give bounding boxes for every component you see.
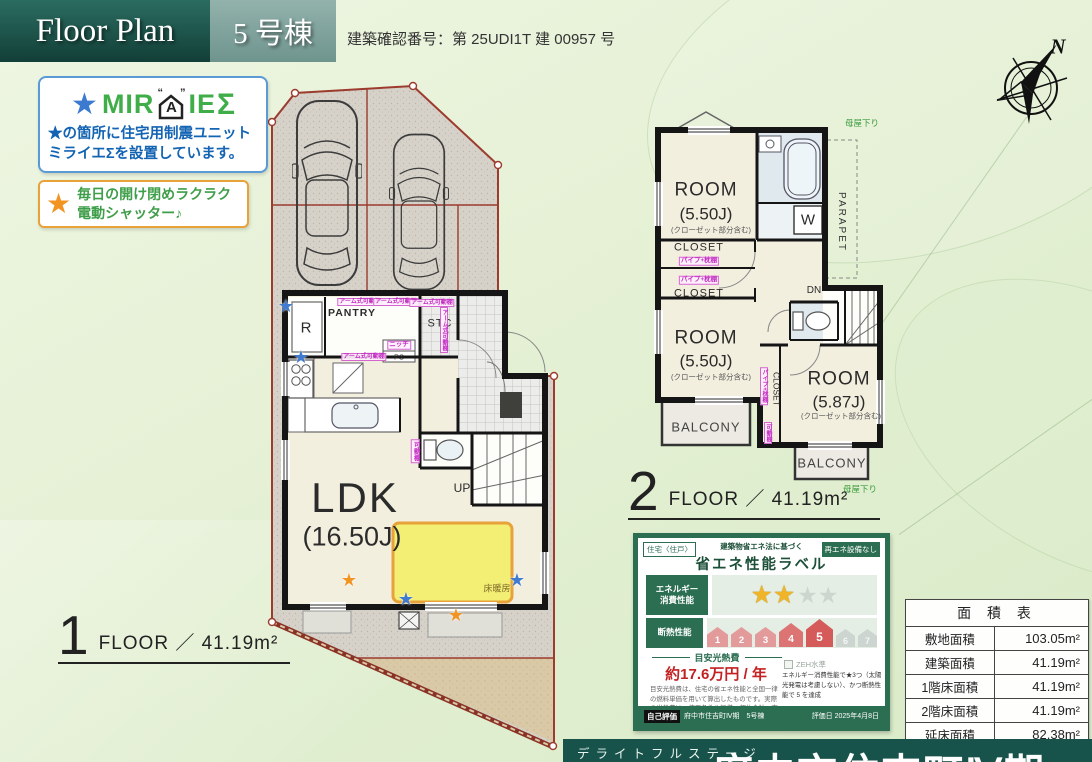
room-label-pantry: PANTRY — [328, 308, 376, 319]
area-row-value: 103.05m² — [994, 627, 1088, 651]
closet-label: CLOSET — [674, 289, 724, 300]
insulation-houses: 1 2 3 4 5 6 7 — [707, 619, 877, 647]
table-row: 敷地面積 103.05m² — [906, 627, 1089, 651]
area-row-value: 41.19m² — [994, 675, 1088, 699]
energy-note-right: エネルギー消費性能で★3つ（太陽光発電は考慮しない）、かつ断熱性能で 5 を達成 — [782, 671, 886, 701]
floor2-number: 2 — [628, 468, 659, 515]
area-table: 面 積 表 敷地面積 103.05m² 建築面積 41.19m² 1階床面積 4… — [905, 599, 1089, 747]
miraie-star-marker: ★ — [293, 348, 309, 366]
floor2-area: FLOOR ／ 41.19m² — [669, 484, 849, 515]
insulation-level-2: 2 — [731, 627, 752, 647]
label-arm-shelf: アーム式可動棚 — [409, 299, 454, 307]
parapet-label: PARAPET — [836, 192, 846, 252]
insulation-row: 断熱性能 1 2 3 4 5 6 7 — [646, 618, 877, 648]
miraie-description-line2: ミライエΣを設置しています。 — [48, 144, 258, 164]
estimated-cost: 約17.6万円 / 年 — [648, 663, 784, 684]
miraie-brand-post: IE — [188, 91, 216, 118]
zeh-level: ZEH水準 — [784, 659, 826, 670]
label-niche: ニッチ — [387, 341, 411, 350]
room-size-label: (5.87J) — [813, 394, 866, 411]
shutter-star-marker: ★ — [341, 571, 357, 589]
label-pipe-shelf: パイプ+枕棚 — [679, 257, 719, 266]
energy-consumption-label: エネルギー 消費性能 — [646, 575, 708, 615]
insulation-level-6: 6 — [836, 629, 855, 647]
miraie-info-box: ★ MIR “ ” A IE Σ ★の箇所に住宅用制震ユニット ミライエΣを設置… — [38, 76, 268, 173]
insulation-label: 断熱性能 — [646, 618, 703, 648]
label-arm-shelf: アーム式可動棚 — [440, 307, 448, 353]
balcony-label: BALCONY — [671, 421, 740, 434]
closet-note: (クローゼット部分含む) — [671, 226, 751, 234]
zeh-checkbox-icon — [784, 660, 793, 669]
table-row: 2階床面積 41.19m² — [906, 699, 1089, 723]
miraie-description-line1: ★の箇所に住宅用制震ユニット — [48, 124, 258, 144]
stars-filled: ★★ — [750, 580, 795, 610]
floor1-number: 1 — [58, 612, 89, 659]
insulation-level-1: 1 — [707, 627, 728, 647]
label-pipe-shelf: パイプ+枕棚 — [679, 276, 719, 285]
room-label-fridge: R — [301, 321, 312, 336]
energy-label-title: 省エネ性能ラベル — [638, 553, 885, 574]
room-size-label: (5.50J) — [680, 353, 733, 370]
area-row-value: 41.19m² — [994, 651, 1088, 675]
energy-row-line1: エネルギー — [656, 584, 699, 595]
insulation-level-4: 4 — [779, 623, 803, 647]
label-pipe-shelf: パイプ+枕棚 — [760, 367, 768, 405]
table-row: 建築面積 41.19m² — [906, 651, 1089, 675]
label-movable-shelf: 可動棚 — [764, 422, 772, 444]
project-name: 府中市住吉町Ⅳ期 — [713, 741, 1046, 762]
floor2-caption: 2 FLOOR ／ 41.19m² — [628, 468, 880, 520]
zeh-label: ZEH水準 — [796, 659, 826, 670]
energy-label-subtitle: 建築物省エネ法に基づく — [638, 541, 885, 552]
moya-kudari-label: 母屋下り — [845, 119, 879, 128]
label-arm-shelf: アーム式可動棚 — [341, 353, 386, 361]
area-row-label: 2階床面積 — [906, 699, 995, 723]
closet-label: CLOSET — [674, 243, 724, 254]
miraie-logo: ★ MIR “ ” A IE Σ — [48, 86, 258, 124]
star-icon: ★ — [71, 90, 98, 120]
area-row-label: 建築面積 — [906, 651, 995, 675]
flyer-canvas: Floor Plan 5 号棟 建築確認番号：第 25UDI1T 建 00957… — [0, 0, 1092, 762]
unit-badge: 5 号棟 — [210, 0, 336, 62]
room-label: ROOM — [674, 329, 737, 348]
miraie-brand-pre: MIR — [102, 91, 155, 118]
energy-row-line2: 消費性能 — [660, 595, 694, 606]
closet-note: (クローゼット部分含む) — [671, 373, 751, 381]
closet-label: CLOSET — [772, 372, 781, 406]
floor-heating-label: 床暖房 — [483, 585, 510, 594]
insulation-level-3: 3 — [755, 627, 776, 647]
room-size-label: (5.50J) — [680, 206, 733, 223]
washer-label: W — [801, 213, 815, 228]
stairs-dn-label: DN — [807, 286, 821, 296]
floor1-area: FLOOR ／ 41.19m² — [99, 628, 279, 659]
shutter-line1: 毎日の開け閉めラクラク — [77, 185, 231, 204]
energy-consumption-row: エネルギー 消費性能 ★★ ★★ — [646, 575, 877, 615]
energy-performance-label: 住宅〈住戸〉 再エネ設備なし 建築物省エネ法に基づく 省エネ性能ラベル エネルギ… — [633, 533, 890, 731]
energy-label-footer: 自己評価 府中市住吉町Ⅳ期 5号棟 評価日 2025年4月8日 — [638, 706, 885, 726]
footer-banner: デライトフルステージ 府中市住吉町Ⅳ期 — [563, 739, 1092, 762]
miraie-star-marker: ★ — [278, 297, 294, 315]
evaluation-date: 評価日 2025年4月8日 — [812, 711, 879, 721]
insulation-level-5: 5 — [806, 619, 833, 647]
shutter-info-box: ★ 毎日の開け閉めラクラク 電動シャッター♪ — [38, 180, 249, 228]
shutter-description: 毎日の開け閉めラクラク 電動シャッター♪ — [77, 185, 231, 223]
area-row-label: 敷地面積 — [906, 627, 995, 651]
building-confirmation-number: 建築確認番号：第 25UDI1T 建 00957 号 — [347, 28, 615, 49]
closet-note: (クローゼット部分含む) — [801, 412, 881, 420]
room-label: ROOM — [807, 370, 870, 389]
star-icon: ★ — [46, 190, 71, 218]
area-row-value: 41.19m² — [994, 699, 1088, 723]
floor1-caption: 1 FLOOR ／ 41.19m² — [58, 612, 290, 664]
stars-empty: ★★ — [797, 582, 838, 609]
table-row: 1階床面積 41.19m² — [906, 675, 1089, 699]
insulation-scale: 1 2 3 4 5 6 7 — [707, 618, 877, 648]
page-title: Floor Plan — [0, 0, 210, 62]
house-a-icon: “ ” A — [156, 89, 186, 121]
energy-star-rating: ★★ ★★ — [712, 575, 877, 615]
shutter-star-marker: ★ — [448, 606, 464, 624]
area-row-label: 1階床面積 — [906, 675, 995, 699]
miraie-sigma: Σ — [217, 90, 235, 120]
evaluated-project: 府中市住吉町Ⅳ期 5号棟 — [684, 711, 764, 721]
miraie-brand-a: A — [156, 99, 186, 116]
room-label-ldk-size: (16.50J) — [302, 524, 401, 551]
insulation-level-7: 7 — [858, 629, 877, 647]
energy-label-header: 建築物省エネ法に基づく 省エネ性能ラベル — [638, 541, 885, 574]
room-label-ldk: LDK — [311, 477, 399, 519]
stairs-up-label: UP — [454, 482, 471, 494]
compass-north-label: N — [1050, 35, 1065, 60]
label-ps: PS — [394, 353, 404, 361]
self-evaluation-badge: 自己評価 — [644, 710, 680, 723]
label-movable-shelf: 可動棚 — [411, 439, 420, 463]
room-label: ROOM — [674, 181, 737, 200]
miraie-star-marker: ★ — [509, 571, 525, 589]
shutter-line2: 電動シャッター♪ — [77, 204, 231, 223]
area-table-title: 面 積 表 — [906, 600, 1089, 627]
miraie-star-marker: ★ — [398, 590, 414, 608]
